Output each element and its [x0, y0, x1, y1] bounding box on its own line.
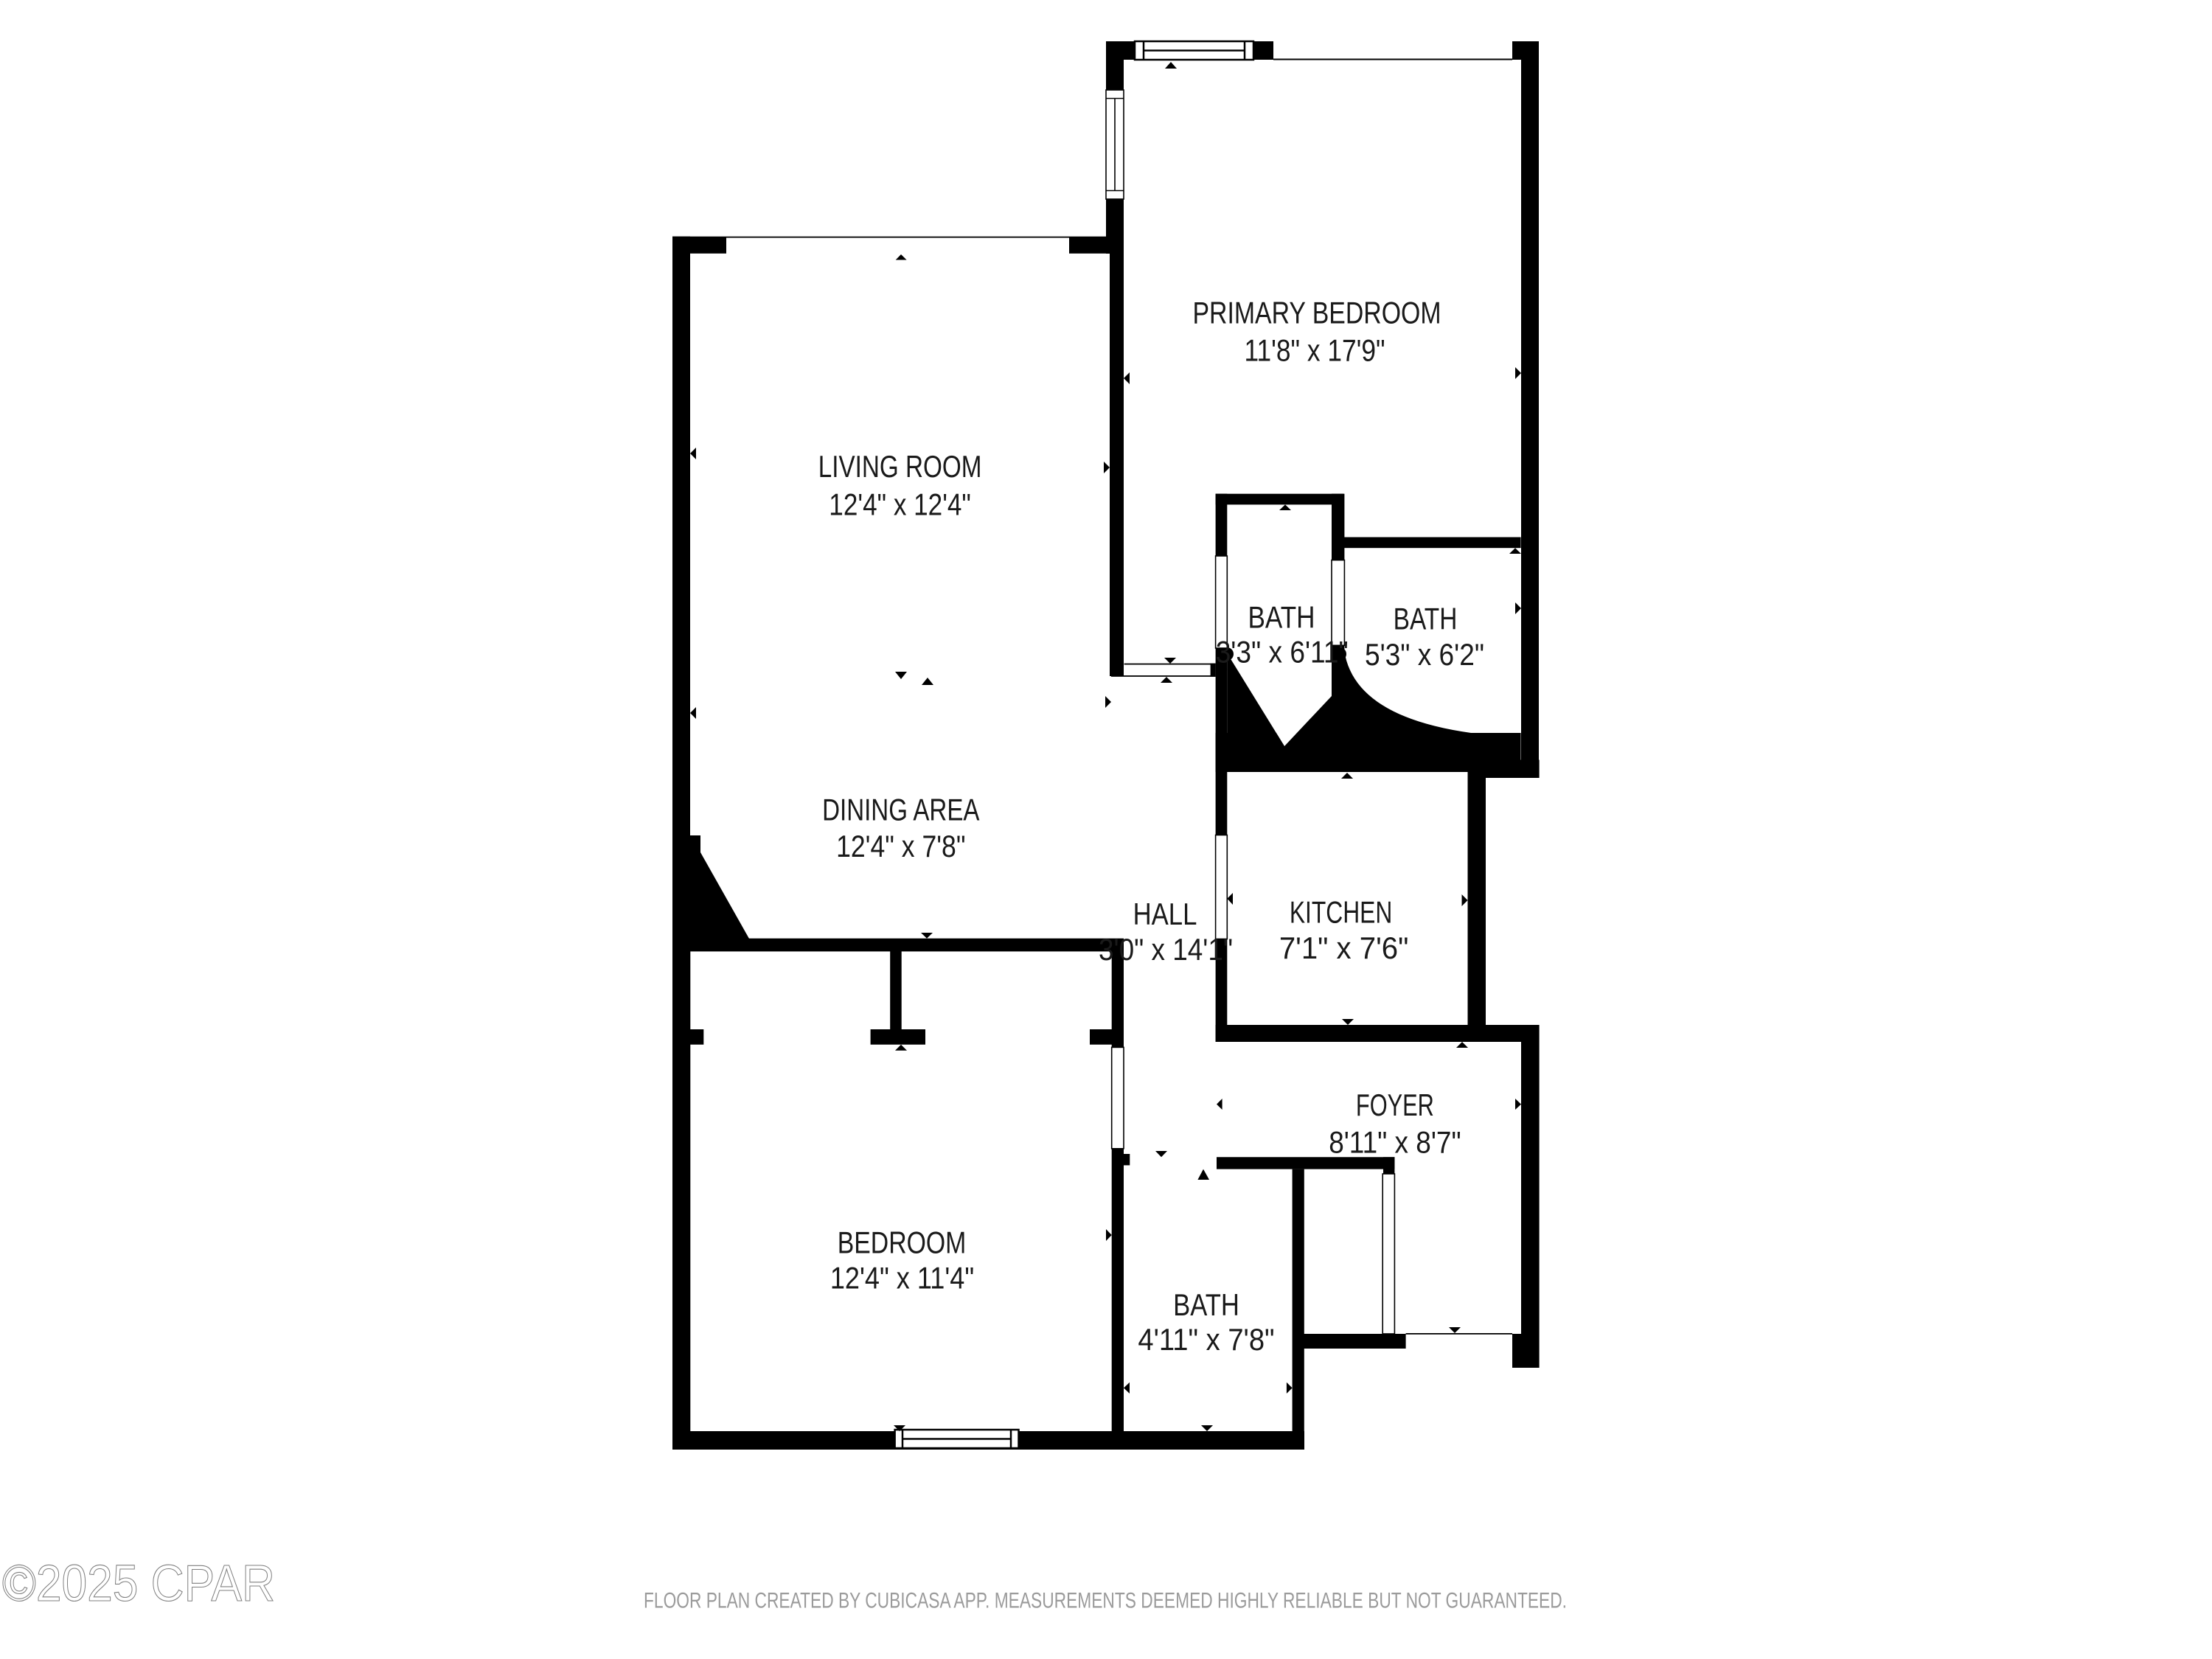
svg-text:DINING AREA: DINING AREA [822, 792, 979, 827]
svg-text:11'8" x 17'9": 11'8" x 17'9" [1245, 333, 1385, 368]
svg-text:12'4" x 11'4": 12'4" x 11'4" [830, 1261, 974, 1295]
svg-text:FLOOR PLAN CREATED BY CUBICASA: FLOOR PLAN CREATED BY CUBICASA APP. MEAS… [644, 1589, 1567, 1613]
svg-text:FOYER: FOYER [1356, 1088, 1434, 1122]
svg-text:HALL: HALL [1133, 897, 1197, 931]
svg-text:©2025 CPAR: ©2025 CPAR [2, 1554, 275, 1612]
svg-text:BATH: BATH [1173, 1287, 1239, 1322]
svg-text:BEDROOM: BEDROOM [838, 1225, 967, 1260]
svg-text:3'0" x 14'1": 3'0" x 14'1" [1099, 932, 1233, 967]
svg-text:8'11" x 8'7": 8'11" x 8'7" [1329, 1124, 1461, 1159]
svg-text:4'11" x 7'8": 4'11" x 7'8" [1138, 1322, 1274, 1357]
svg-text:5'3" x 6'2": 5'3" x 6'2" [1365, 637, 1484, 672]
svg-text:12'4" x 7'8": 12'4" x 7'8" [836, 829, 965, 863]
svg-text:BATH: BATH [1394, 602, 1458, 636]
svg-text:LIVING ROOM: LIVING ROOM [818, 449, 982, 484]
svg-text:7'1" x 7'6": 7'1" x 7'6" [1279, 931, 1409, 965]
svg-text:KITCHEN: KITCHEN [1290, 895, 1393, 930]
svg-text:12'4" x 12'4": 12'4" x 12'4" [829, 487, 971, 522]
svg-text:BATH: BATH [1248, 600, 1315, 635]
svg-text:PRIMARY BEDROOM: PRIMARY BEDROOM [1193, 296, 1441, 330]
svg-text:3'3" x 6'11": 3'3" x 6'11" [1216, 635, 1349, 669]
